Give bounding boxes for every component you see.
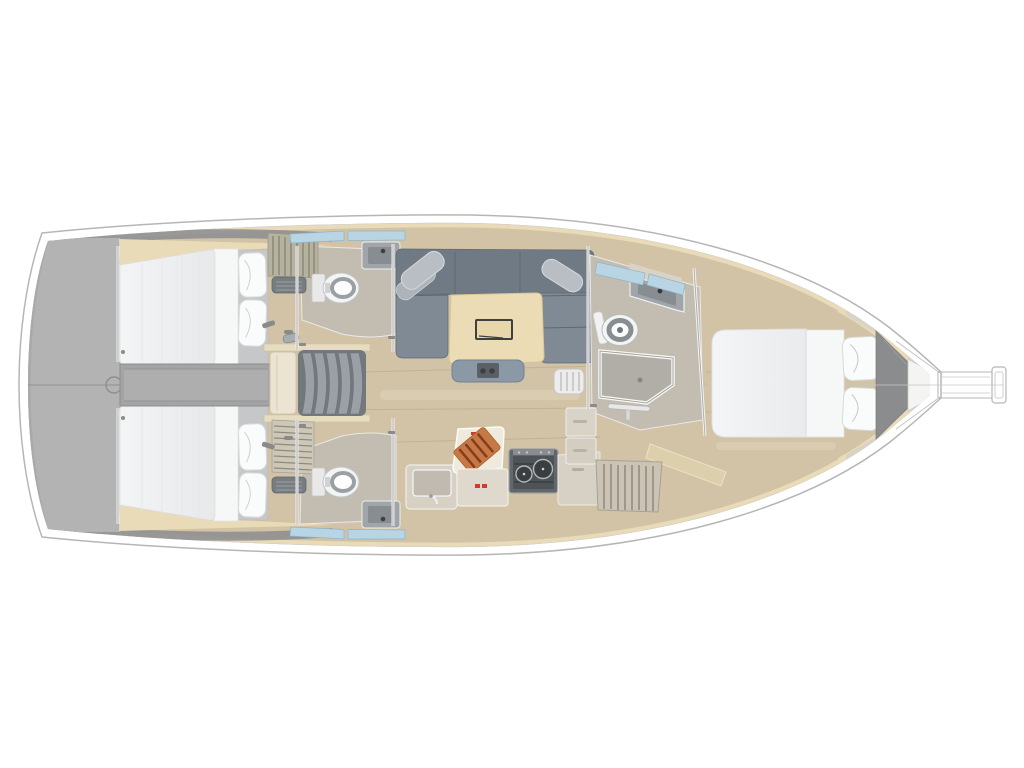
door-handle: [284, 330, 293, 334]
galley-sink-unit: [406, 465, 457, 509]
double-berth: [120, 405, 215, 520]
island-berth: [712, 329, 806, 437]
stair-landing: [270, 352, 296, 414]
galley-sink-basin: [413, 470, 451, 496]
door-handle: [284, 436, 293, 440]
fridge-logo: [482, 484, 487, 488]
stair-rail-upper: [264, 344, 370, 351]
window-pane: [348, 231, 405, 241]
folding-stool: [554, 369, 584, 394]
stair-treads: [302, 353, 363, 414]
cabin-door-knob: [121, 350, 125, 354]
stove: [509, 449, 558, 493]
sink-basin: [368, 506, 394, 523]
toilet-hinge: [325, 477, 330, 487]
berth-head-section: [806, 330, 844, 437]
locker-handle: [573, 449, 587, 452]
wardrobe-lockers: [566, 408, 596, 464]
faucet: [381, 517, 386, 522]
galley-faucet-base: [429, 494, 433, 498]
fridge-logo: [475, 484, 480, 488]
double-berth: [120, 250, 215, 365]
toilet-hinge: [325, 283, 330, 293]
vent-panel: [272, 477, 306, 493]
vent-panel: [272, 277, 306, 293]
settee-left-arm: [396, 294, 448, 358]
window-pane: [348, 530, 405, 540]
slatted-bench: [596, 460, 662, 512]
interior: [27, 215, 941, 555]
toilet-flush: [617, 327, 623, 333]
pedestal-knob: [489, 368, 495, 374]
transom-swim-platform: [27, 238, 122, 532]
floor-plan-canvas: [0, 0, 1024, 768]
shower-drain: [638, 378, 643, 383]
sink-basin: [368, 247, 394, 264]
locker-handle: [573, 420, 587, 423]
locker-handle: [572, 468, 584, 471]
pedestal-knob: [480, 368, 486, 374]
berth-sheet: [214, 249, 238, 365]
fridge-front: [457, 469, 508, 506]
faucet: [381, 249, 386, 254]
companionway-stairs: [264, 332, 370, 433]
boat-floor-plan: [0, 0, 1024, 768]
berth-sheet: [214, 405, 238, 521]
toilet-seat: [332, 279, 354, 297]
toilet-seat: [332, 473, 354, 491]
cabin-door-knob: [121, 416, 125, 420]
